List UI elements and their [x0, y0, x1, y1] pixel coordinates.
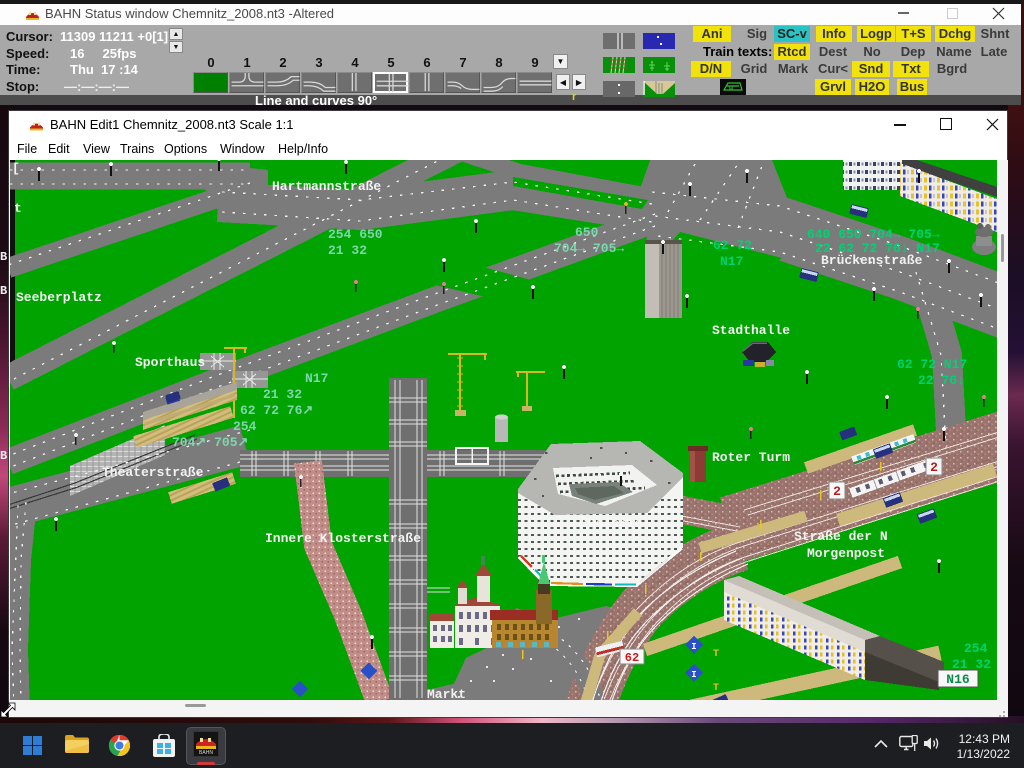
svg-text:22 76↓: 22 76↓	[918, 373, 965, 388]
svg-text:21 32: 21 32	[263, 387, 302, 402]
svg-text:640 650 704→ 705→: 640 650 704→ 705→	[807, 227, 940, 242]
svg-text:N17: N17	[720, 254, 743, 269]
svg-text:254 650: 254 650	[328, 227, 383, 242]
svg-text:Stadthalle: Stadthalle	[712, 323, 790, 338]
svg-text:254: 254	[964, 641, 988, 656]
svg-text:Hartmannstraße: Hartmannstraße	[272, 179, 381, 194]
svg-text:Roter Turm: Roter Turm	[712, 450, 790, 465]
svg-text:62 72: 62 72	[713, 238, 752, 253]
svg-text:Seeberplatz: Seeberplatz	[16, 290, 102, 305]
svg-text:BAHN: BAHN	[199, 750, 213, 756]
svg-text:Straße der N: Straße der N	[794, 529, 888, 544]
svg-text:62: 62	[625, 651, 639, 665]
svg-text:"Galerie: "Galerie	[580, 516, 643, 531]
svg-text:650: 650	[575, 225, 599, 240]
svg-text:704→ 705→: 704→ 705→	[554, 241, 624, 256]
svg-text:T: T	[713, 683, 719, 694]
svg-text:21 32: 21 32	[952, 657, 991, 672]
svg-text:Theaterstraße: Theaterstraße	[102, 465, 204, 480]
svg-text:Innere Klosterstraße: Innere Klosterstraße	[265, 531, 421, 546]
svg-text:[: [	[12, 161, 20, 176]
svg-text:I: I	[691, 670, 696, 680]
svg-text:t: t	[14, 201, 22, 216]
svg-text:N17: N17	[305, 371, 328, 386]
svg-text:2: 2	[930, 460, 938, 475]
svg-text:Markt: Markt	[427, 687, 466, 700]
svg-text:704↗ 705↗: 704↗ 705↗	[172, 435, 248, 450]
svg-text:T: T	[713, 649, 719, 660]
svg-text:Morgenpost: Morgenpost	[807, 546, 885, 561]
svg-text:Sporthaus: Sporthaus	[135, 355, 205, 370]
svg-text:254: 254	[233, 419, 257, 434]
svg-text:21 32: 21 32	[328, 243, 367, 258]
svg-text:62 72 76↗: 62 72 76↗	[240, 403, 313, 418]
svg-text:I: I	[691, 642, 696, 652]
svg-text:62 72 N17: 62 72 N17	[897, 357, 967, 372]
svg-text:2: 2	[833, 484, 841, 499]
svg-text:22 62 72 76↓ N17: 22 62 72 76↓ N17	[815, 241, 940, 256]
svg-text:N16: N16	[946, 672, 970, 687]
